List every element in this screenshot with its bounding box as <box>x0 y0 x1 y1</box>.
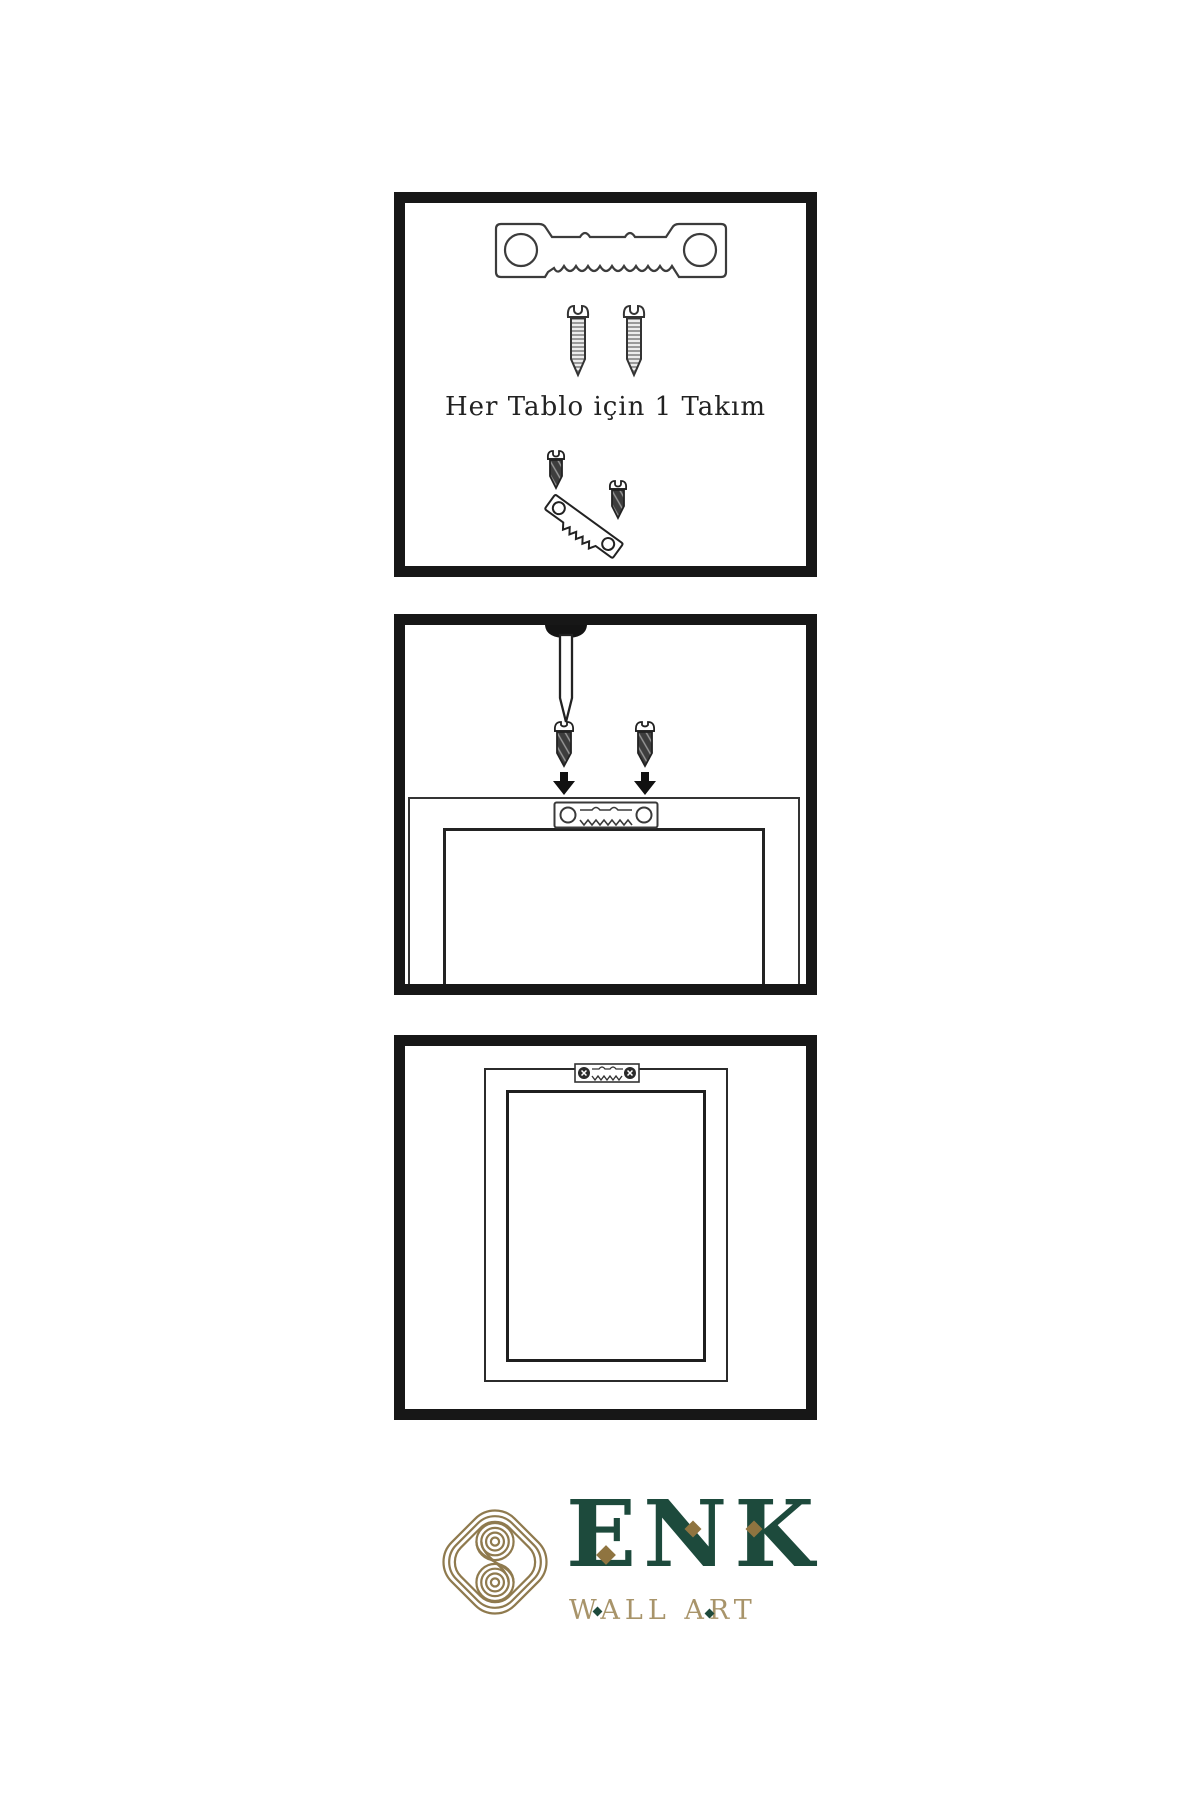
instruction-sheet: Her Tablo için 1 Takım <box>0 0 1200 1800</box>
sawtooth-hanger-with-screws-icon <box>574 1060 640 1086</box>
screw-icon <box>551 719 577 771</box>
sawtooth-hanger-icon <box>553 801 659 829</box>
step-caption: Her Tablo için 1 Takım <box>405 392 806 422</box>
arrow-down-icon <box>552 772 576 795</box>
screw-icon <box>563 302 593 380</box>
wall-nail-icon <box>543 625 589 727</box>
step-panel-hung-frame <box>394 1035 817 1420</box>
screw-icon <box>632 719 658 771</box>
arrow-down-icon <box>633 772 657 795</box>
brand-logo: ENK WALL ART <box>430 1488 780 1658</box>
screw-into-hanger-icon <box>505 449 647 561</box>
screw-icon <box>619 302 649 380</box>
frame-outer-edge <box>484 1068 728 1382</box>
sawtooth-hanger-icon <box>493 222 729 279</box>
step-panel-hardware: Her Tablo için 1 Takım <box>394 192 817 577</box>
step-panel-mounting <box>394 614 817 995</box>
frame-back-inner-edge <box>443 828 765 984</box>
knot-logo-icon <box>430 1494 560 1630</box>
frame-inner-edge <box>506 1090 706 1362</box>
screws-pair <box>405 302 806 380</box>
